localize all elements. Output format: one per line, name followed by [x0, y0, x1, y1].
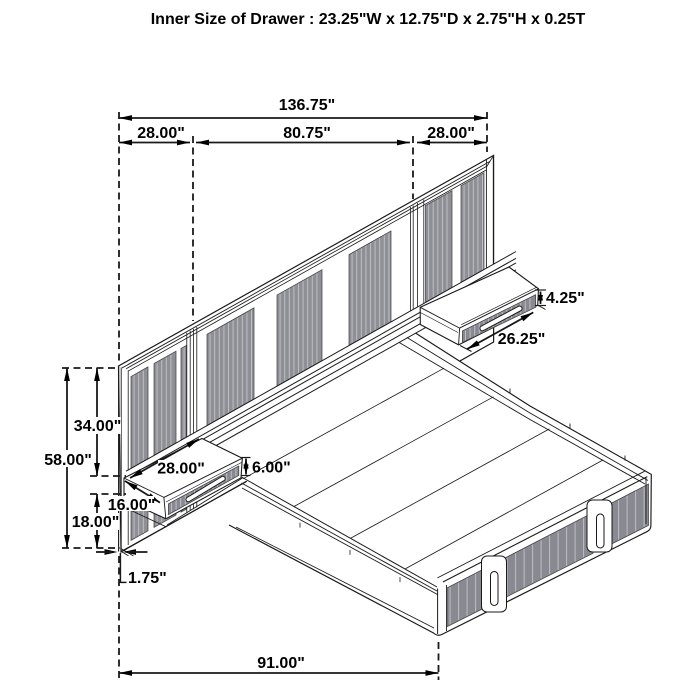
- svg-text:136.75": 136.75": [279, 97, 336, 114]
- svg-text:28.00": 28.00": [427, 125, 475, 142]
- svg-text:28.00": 28.00": [157, 461, 205, 478]
- svg-text:16.00": 16.00": [108, 497, 156, 514]
- svg-text:26.25": 26.25": [498, 331, 546, 348]
- svg-text:4.25": 4.25": [546, 290, 585, 307]
- svg-text:18.00": 18.00": [72, 514, 120, 531]
- svg-text:28.00": 28.00": [137, 125, 185, 142]
- svg-text:Inner Size of Drawer : 23.25"W: Inner Size of Drawer : 23.25"W x 12.75"D…: [151, 11, 586, 28]
- svg-text:6.00": 6.00": [252, 460, 291, 477]
- svg-text:1.75": 1.75": [128, 570, 167, 587]
- svg-text:34.00": 34.00": [74, 418, 122, 435]
- svg-text:80.75": 80.75": [283, 125, 331, 142]
- svg-text:58.00": 58.00": [44, 452, 92, 469]
- svg-text:91.00": 91.00": [257, 655, 305, 672]
